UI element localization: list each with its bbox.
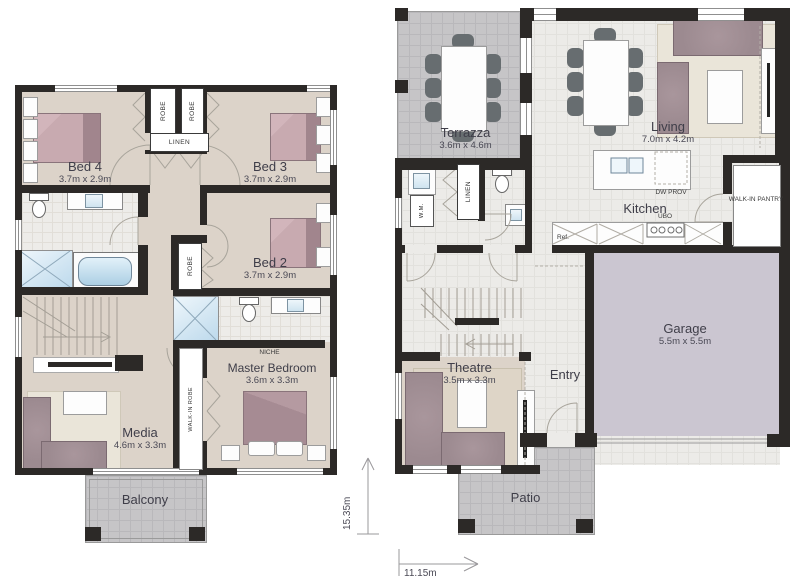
room-dims: 3.5m x 3.3m — [417, 376, 522, 387]
wall-segment — [398, 352, 440, 361]
basin-icon — [510, 209, 522, 221]
wall-segment — [200, 185, 337, 193]
balcony-railing — [89, 479, 203, 539]
walk-in-pantry-label: WALK-IN PANTRY — [728, 196, 784, 204]
balcony-post — [189, 527, 205, 541]
wall-segment — [173, 340, 325, 348]
ground-floor-plan: W.M. LINEN — [395, 8, 790, 545]
wall-segment — [15, 85, 22, 475]
entry-label: Entry — [535, 368, 595, 383]
bed4-label: Bed 4 3.7m x 2.9m — [35, 160, 135, 186]
patio-post — [458, 519, 475, 533]
room-name: Bed 3 — [220, 160, 320, 175]
cabinet — [23, 97, 38, 117]
living-label: Living 7.0m x 4.2m — [618, 120, 718, 146]
width-dimension-label: 11.15m — [404, 568, 437, 579]
cabinet — [23, 141, 38, 161]
window — [330, 377, 337, 449]
room-name: Balcony — [85, 493, 205, 508]
wall-segment — [520, 12, 532, 163]
ref-label: Ref. — [554, 234, 583, 242]
bedside-table — [221, 445, 240, 461]
wall-segment — [525, 158, 532, 253]
bed-icon — [33, 113, 84, 163]
chair-icon — [425, 78, 442, 98]
wall-segment — [115, 355, 143, 371]
garage-post — [583, 434, 597, 447]
chair-icon — [567, 48, 584, 68]
linen-closet: LINEN — [457, 164, 480, 220]
terrazza-post — [395, 80, 408, 93]
window — [413, 465, 447, 474]
pillow — [248, 441, 275, 456]
chair-icon — [567, 72, 584, 92]
room-name: Terrazza — [413, 126, 518, 141]
niche-label: NICHE — [247, 349, 292, 357]
chair-icon — [567, 96, 584, 116]
wall-segment — [585, 252, 594, 434]
tv-icon — [767, 63, 770, 117]
room-name: Theatre — [417, 361, 522, 376]
theatre-label: Theatre 3.5m x 3.3m — [417, 361, 522, 387]
window — [307, 85, 330, 92]
window — [15, 220, 22, 250]
patio-label: Patio — [473, 491, 578, 506]
wall-segment — [520, 433, 547, 447]
cabinet — [23, 119, 38, 139]
toilet-icon — [242, 304, 256, 322]
sofa-icon — [441, 432, 505, 468]
room-name: Media — [85, 426, 195, 441]
door-opening — [405, 245, 437, 253]
bed-icon — [243, 391, 307, 445]
wall-segment — [171, 235, 207, 243]
walk-in-robe-label: WALK-IN ROBE — [188, 387, 194, 432]
dw-prov-label: DW PROV — [651, 189, 691, 197]
wall-segment — [723, 155, 790, 163]
ubo-label: UBO — [645, 213, 685, 221]
door-opening — [483, 245, 515, 253]
robe-label: ROBE — [187, 256, 194, 276]
room-name: Garage — [635, 322, 735, 337]
floorplan-canvas: ROBE ROBE LINEN ROBE WALK-IN ROBE — [0, 0, 800, 586]
balcony-label: Balcony — [85, 493, 205, 508]
toilet-icon — [495, 175, 509, 193]
bed-icon — [270, 113, 307, 161]
basin-icon — [85, 194, 103, 208]
robe-label: ROBE — [160, 101, 167, 121]
cabinet — [316, 125, 331, 145]
window — [330, 110, 337, 165]
entry-shelf — [523, 400, 527, 458]
pantry-room — [733, 165, 781, 247]
linen-label: LINEN — [169, 139, 190, 146]
dining-table-icon — [583, 40, 629, 126]
window — [534, 8, 556, 21]
room-name: Bed 2 — [220, 256, 320, 271]
basin-icon — [413, 173, 430, 189]
wall-segment — [723, 222, 732, 253]
height-dimension-label: 15.35m — [342, 470, 353, 530]
room-name: Patio — [473, 491, 578, 506]
room-name: Master Bedroom — [212, 362, 332, 376]
room-dims: 5.5m x 5.5m — [635, 337, 735, 348]
patio-post — [576, 519, 593, 533]
terrazza-post — [395, 8, 408, 21]
kitchen-island — [593, 150, 691, 190]
bathtub-icon — [73, 252, 139, 291]
bed2-label: Bed 2 3.7m x 2.9m — [220, 256, 320, 282]
sofa-icon — [405, 372, 443, 472]
washing-machine: W.M. — [410, 195, 434, 227]
front-door-opening — [547, 433, 575, 447]
basin-icon — [287, 299, 304, 312]
garage-post — [767, 434, 781, 447]
room-name: Entry — [535, 368, 595, 383]
coffee-table-icon — [457, 380, 487, 428]
wall-segment — [138, 245, 148, 290]
master-bedroom-label: Master Bedroom 3.6m x 3.3m — [212, 362, 332, 387]
sliding-door — [520, 103, 532, 135]
wall-segment — [519, 352, 531, 361]
media-label: Media 4.6m x 3.3m — [85, 426, 195, 452]
shower-icon — [19, 250, 73, 290]
room-dims: 3.7m x 2.9m — [220, 175, 320, 186]
wall-segment — [723, 155, 732, 194]
stair-rail — [455, 318, 499, 325]
window — [395, 373, 402, 419]
room-dims: 3.7m x 2.9m — [35, 175, 135, 186]
room-dims: 3.6m x 3.3m — [212, 376, 332, 387]
cabinet — [316, 203, 331, 223]
balcony-post — [85, 527, 101, 541]
wall-segment — [15, 287, 148, 295]
bedside-table — [307, 445, 326, 461]
wall-segment — [775, 8, 790, 158]
bed3-label: Bed 3 3.7m x 2.9m — [220, 160, 320, 186]
chair-icon — [425, 102, 442, 122]
linen-closet: LINEN — [150, 133, 209, 152]
upper-floor-plan: ROBE ROBE LINEN ROBE WALK-IN ROBE — [15, 85, 337, 545]
window — [461, 465, 501, 474]
window — [237, 468, 323, 475]
room-dims: 3.6m x 4.6m — [413, 141, 518, 152]
robe-closet: ROBE — [181, 88, 204, 135]
chair-icon — [425, 54, 442, 74]
tv-cabinet — [63, 391, 107, 415]
room-dims: 7.0m x 4.2m — [618, 135, 718, 146]
wall-segment — [171, 243, 178, 290]
window — [395, 198, 402, 228]
bed-pillow-end — [83, 113, 101, 163]
window — [330, 215, 337, 275]
robe-closet: ROBE — [150, 88, 176, 135]
toilet-icon — [32, 200, 46, 218]
window — [15, 317, 22, 357]
room-dims: 3.7m x 2.9m — [220, 271, 320, 282]
coffee-table-icon — [707, 70, 743, 124]
room-dims: 4.6m x 3.3m — [85, 441, 195, 452]
garage-label: Garage 5.5m x 5.5m — [635, 322, 735, 348]
stair-rail — [48, 362, 112, 367]
wall-segment — [200, 193, 207, 225]
sliding-door — [520, 38, 532, 73]
sofa-icon — [673, 20, 763, 56]
robe-label: ROBE — [189, 101, 196, 121]
cabinet — [316, 97, 331, 117]
window — [698, 8, 744, 21]
linen-label: LINEN — [465, 181, 472, 202]
terrazza-label: Terrazza 3.6m x 4.6m — [413, 126, 518, 152]
dining-table-icon — [441, 46, 487, 132]
robe-closet: ROBE — [178, 243, 202, 290]
wall-segment — [138, 193, 148, 217]
wm-label: W.M. — [419, 203, 425, 218]
pillow — [276, 441, 303, 456]
bathtub-inner — [78, 257, 132, 286]
wall-segment — [15, 185, 150, 193]
window — [55, 85, 117, 92]
room-name: Bed 4 — [35, 160, 135, 175]
room-name: Living — [618, 120, 718, 135]
shower-icon — [173, 296, 219, 343]
